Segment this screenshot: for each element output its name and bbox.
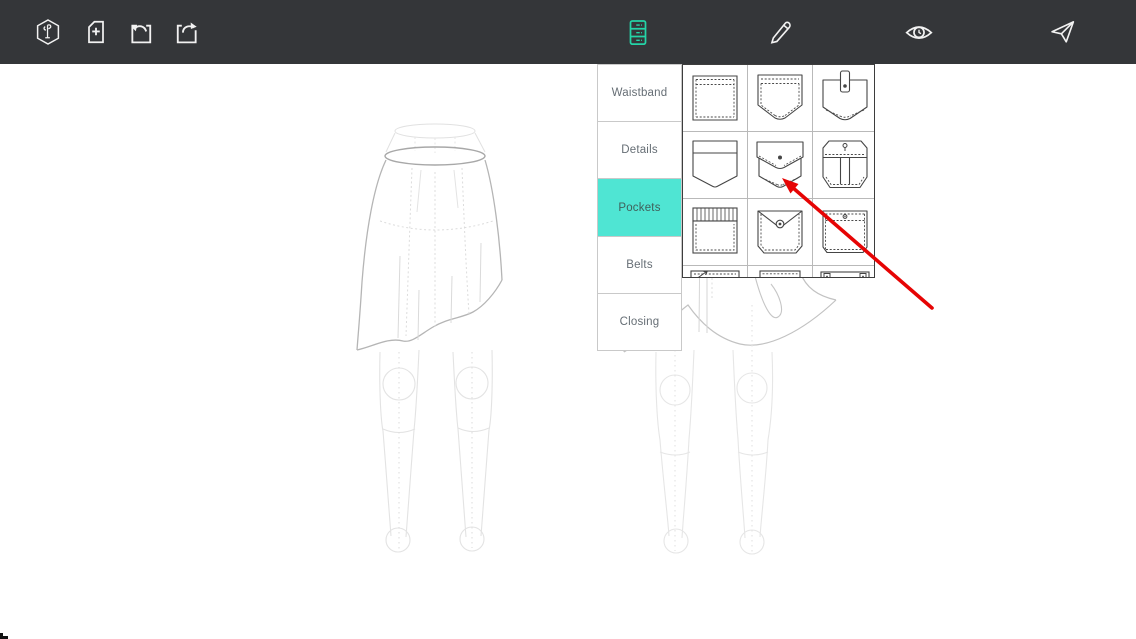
category-menu: WaistbandDetailsPocketsBeltsClosing [597,64,682,351]
send-icon[interactable] [1043,12,1083,52]
pocket-thumb-pocket-welt-zip[interactable] [683,266,748,278]
pocket-thumb-pocket-flap-button[interactable] [748,132,813,199]
fashion-design-app: WaistbandDetailsPocketsBeltsClosing [0,0,1136,639]
new-document-icon[interactable] [76,12,116,52]
pocket-grid [682,64,875,278]
pocket-thumb-pocket-vflap-ring-snap[interactable] [748,199,813,266]
pocket-thumb-pocket-flat-band[interactable] [683,132,748,199]
menu-item-waistband[interactable]: Waistband [598,65,681,122]
menu-item-label: Closing [620,316,660,328]
menu-item-label: Waistband [612,87,668,99]
pocket-tab-button-icon [813,65,875,132]
undo-icon[interactable] [121,12,161,52]
pocket-square-stitched-icon [683,65,747,132]
menu-item-pockets[interactable]: Pockets [598,179,681,236]
pocket-thumb-pocket-square-stitched[interactable] [683,65,748,132]
menu-item-label: Details [621,144,658,156]
pocket-welt-zip-icon [683,266,747,279]
pocket-thumb-pocket-pleated-top[interactable] [683,199,748,266]
pocket-vflap-ring-snap-icon [748,199,812,266]
pocket-thumb-pocket-welt-tabs[interactable] [813,266,875,278]
pocket-curved-bottom-icon [748,65,812,132]
pocket-thumb-pocket-buttoned-top[interactable] [813,199,875,266]
export-icon[interactable] [167,12,207,52]
pocket-welt-plain-icon [748,266,812,279]
pocket-thumb-pocket-tab-button[interactable] [813,65,875,132]
menu-item-label: Pockets [618,202,660,214]
edit-pencil-icon[interactable] [760,12,800,52]
toolbar [0,0,1136,64]
pocket-flap-button-icon [748,132,812,199]
pocket-flat-band-icon [683,132,747,199]
pocket-welt-tabs-icon [813,266,875,279]
menu-item-closing[interactable]: Closing [598,294,681,350]
menu-item-details[interactable]: Details [598,122,681,179]
pocket-thumb-pocket-curved-bottom[interactable] [748,65,813,132]
garment-sketch-canvas [0,0,1136,639]
menu-item-belts[interactable]: Belts [598,237,681,294]
pocket-thumb-pocket-welt-plain[interactable] [748,266,813,278]
pocket-pleated-top-icon [683,199,747,266]
components-drawer-icon[interactable] [618,12,658,52]
menu-item-label: Belts [626,259,653,271]
preview-eye-icon[interactable] [899,12,939,52]
pocket-buttoned-top-icon [813,199,875,266]
pocket-cargo-two-compartment-icon [813,132,875,199]
logo-hexagon-icon[interactable] [28,12,68,52]
pocket-thumb-pocket-cargo-two-compartment[interactable] [813,132,875,199]
skirt-front-view-sketch [357,124,502,552]
